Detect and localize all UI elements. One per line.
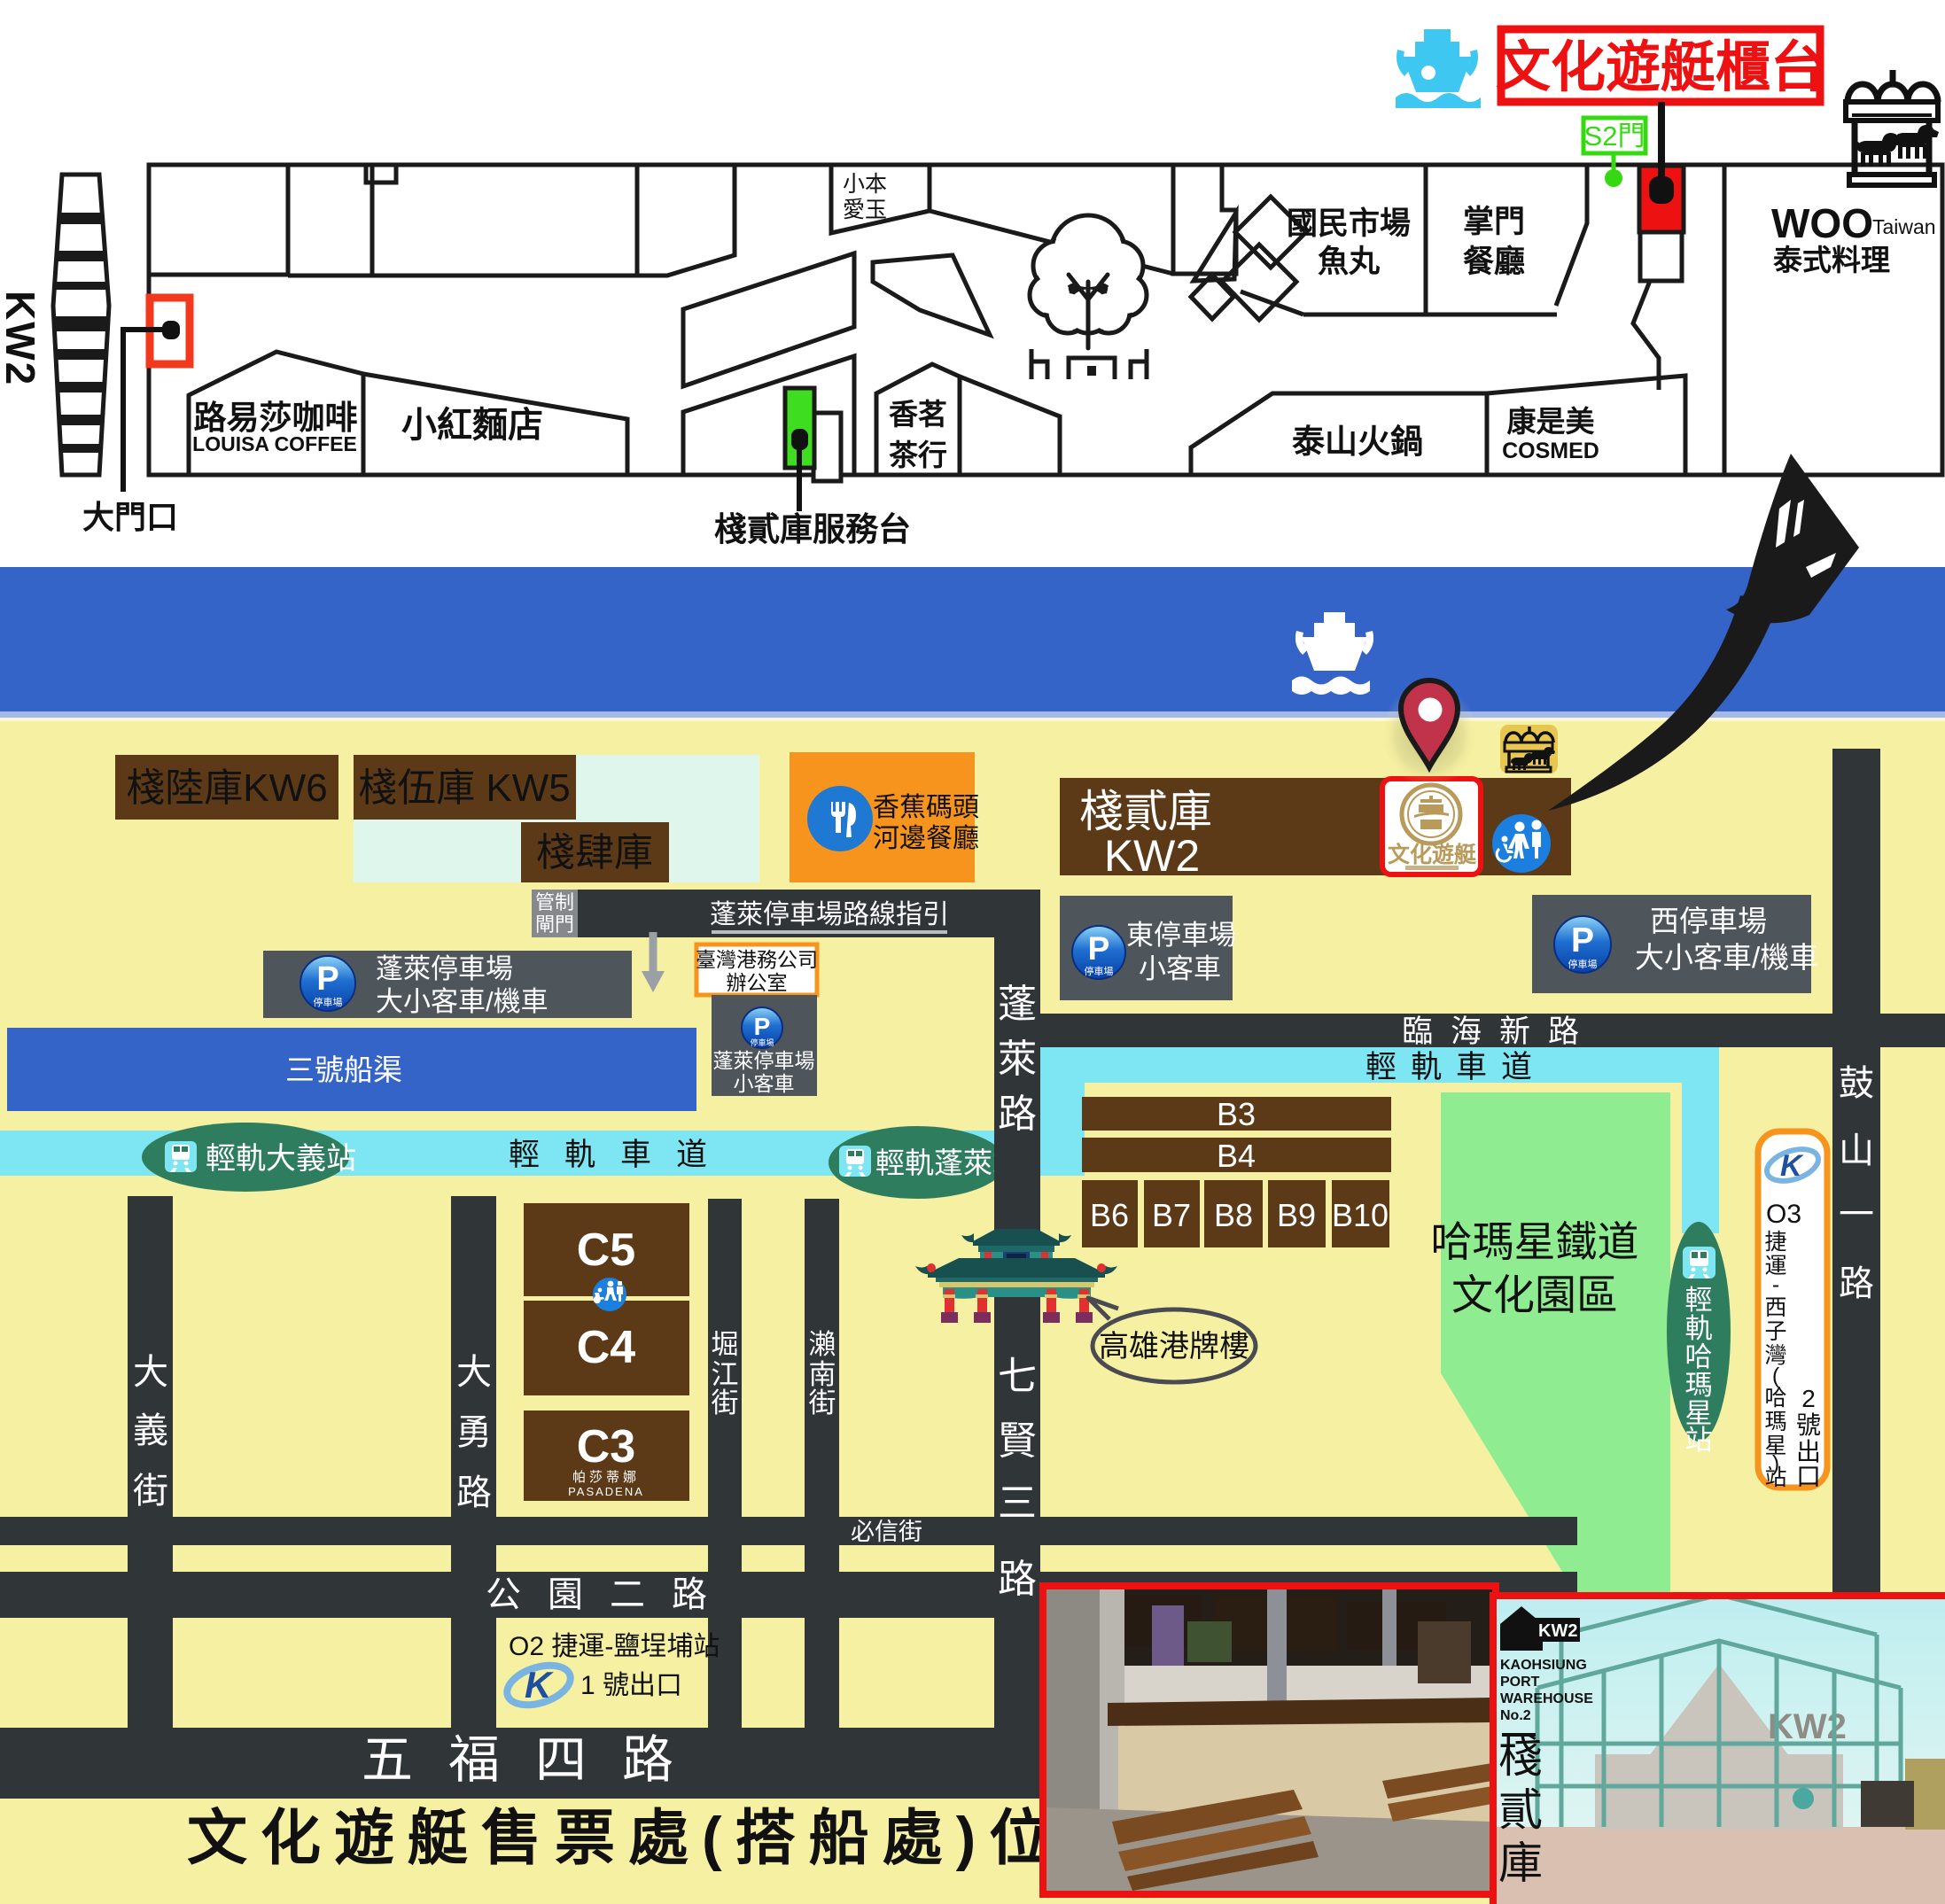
svg-text:小客車: 小客車: [1139, 953, 1221, 984]
svg-text:大小客車/機車: 大小客車/機車: [1635, 941, 1818, 974]
svg-text:愛玉: 愛玉: [843, 198, 887, 222]
svg-text:路: 路: [998, 1092, 1037, 1136]
svg-text:文化園區: 文化園區: [1451, 1271, 1618, 1318]
svg-text:子: 子: [1764, 1319, 1786, 1344]
svg-text:庫: 庫: [1498, 1838, 1543, 1888]
svg-text:站: 站: [1764, 1465, 1786, 1490]
svg-text:瀨: 瀨: [809, 1329, 836, 1360]
svg-text:B4: B4: [1217, 1138, 1256, 1174]
svg-text:站: 站: [1685, 1425, 1713, 1456]
svg-text:輕軌車道: 輕軌車道: [509, 1138, 732, 1172]
svg-text:O3: O3: [1766, 1200, 1801, 1229]
svg-text:輕軌車道: 輕軌車道: [1365, 1050, 1546, 1084]
svg-text:KW2: KW2: [1538, 1621, 1577, 1641]
svg-text:C5: C5: [577, 1224, 635, 1276]
svg-text:義: 義: [133, 1411, 168, 1450]
svg-text:PORT: PORT: [1500, 1675, 1540, 1690]
svg-text:No.2: No.2: [1500, 1708, 1531, 1723]
svg-text:蓬萊停車場: 蓬萊停車場: [713, 1049, 815, 1072]
svg-text:國民市場: 國民市場: [1287, 206, 1411, 241]
svg-text:停車場: 停車場: [314, 996, 343, 1008]
svg-text:停車場: 停車場: [750, 1037, 774, 1047]
svg-text:魚丸: 魚丸: [1318, 245, 1380, 279]
svg-text:P: P: [1571, 921, 1594, 960]
svg-text:棧伍庫 KW5: 棧伍庫 KW5: [358, 766, 571, 810]
svg-text:捷: 捷: [1764, 1230, 1786, 1255]
svg-text:五福四路: 五福四路: [362, 1731, 709, 1789]
svg-text:貳: 貳: [1498, 1785, 1543, 1835]
svg-text:西停車場: 西停車場: [1650, 905, 1767, 937]
svg-text:停車場: 停車場: [1085, 965, 1114, 977]
svg-text:棧肆庫: 棧肆庫: [536, 831, 653, 874]
svg-text:WAREHOUSE: WAREHOUSE: [1500, 1691, 1593, 1706]
svg-text:號: 號: [1796, 1411, 1821, 1439]
svg-text:路: 路: [998, 1558, 1037, 1601]
svg-text:公園二路: 公園二路: [486, 1575, 734, 1614]
svg-text:康是美: 康是美: [1507, 405, 1595, 438]
svg-text:文化遊艇: 文化遊艇: [1388, 842, 1476, 867]
svg-text:KAOHSIUNG: KAOHSIUNG: [1500, 1658, 1587, 1673]
svg-text:B10: B10: [1332, 1197, 1389, 1233]
svg-text:KW2: KW2: [1104, 831, 1200, 881]
svg-text:臨海新路: 臨海新路: [1402, 1014, 1597, 1049]
svg-text:大: 大: [133, 1353, 168, 1392]
svg-text:茶行: 茶行: [889, 439, 947, 471]
svg-text:哈: 哈: [1764, 1386, 1786, 1411]
svg-text:大門口: 大門口: [82, 499, 178, 535]
svg-text:山: 山: [1839, 1131, 1874, 1170]
svg-text:哈瑪星鐵道: 哈瑪星鐵道: [1431, 1218, 1639, 1265]
svg-text:小客車: 小客車: [734, 1072, 795, 1095]
svg-text:K: K: [525, 1664, 554, 1706]
svg-text:B9: B9: [1277, 1197, 1316, 1233]
svg-text:P: P: [1088, 930, 1110, 967]
svg-text:萊: 萊: [998, 1037, 1037, 1081]
svg-text:棧貳庫服務台: 棧貳庫服務台: [714, 511, 911, 548]
svg-text:香蕉碼頭: 香蕉碼頭: [873, 793, 979, 822]
svg-text:小本: 小本: [843, 172, 887, 197]
svg-text:Taiwan: Taiwan: [1872, 215, 1936, 238]
svg-text:停車場: 停車場: [1568, 958, 1598, 970]
svg-text:南: 南: [809, 1359, 836, 1390]
svg-text:輕軌大義站: 輕軌大義站: [206, 1142, 356, 1176]
svg-text:掌門: 掌門: [1463, 205, 1525, 239]
svg-text:文化遊艇櫃台: 文化遊艇櫃台: [1496, 37, 1825, 98]
svg-text:出: 出: [1796, 1438, 1821, 1465]
svg-text:小紅麵店: 小紅麵店: [401, 406, 543, 445]
svg-text:街: 街: [133, 1472, 168, 1511]
svg-text:棧貳庫: 棧貳庫: [1079, 787, 1212, 836]
svg-text:S2門: S2門: [1584, 120, 1645, 152]
svg-text:必信街: 必信街: [851, 1519, 922, 1545]
svg-text:鼓: 鼓: [1839, 1064, 1874, 1103]
svg-text:河邊餐廳: 河邊餐廳: [873, 824, 979, 853]
svg-text:軌: 軌: [1685, 1313, 1713, 1344]
svg-text:香茗: 香茗: [889, 398, 947, 431]
svg-text:大小客車/機車: 大小客車/機車: [376, 986, 548, 1017]
svg-text:輕: 輕: [1685, 1285, 1713, 1316]
svg-text:-: -: [1772, 1272, 1779, 1297]
svg-text:K: K: [1780, 1149, 1804, 1183]
svg-text:堀: 堀: [712, 1329, 739, 1360]
svg-text:2: 2: [1801, 1385, 1816, 1412]
svg-text:路易莎咖啡: 路易莎咖啡: [194, 400, 358, 436]
svg-text:一: 一: [1839, 1195, 1874, 1234]
svg-text:1 號出口: 1 號出口: [580, 1671, 682, 1700]
svg-text:棧: 棧: [1498, 1732, 1543, 1782]
svg-text:LOUISA COFFEE: LOUISA COFFEE: [192, 432, 357, 455]
svg-text:(: (: [1772, 1364, 1780, 1388]
svg-text:B3: B3: [1217, 1096, 1256, 1132]
svg-text:路: 路: [1839, 1264, 1874, 1303]
svg-text:瑪: 瑪: [1764, 1410, 1786, 1434]
svg-text:七: 七: [998, 1355, 1037, 1398]
svg-text:KW2: KW2: [0, 291, 43, 386]
svg-text:大: 大: [456, 1353, 492, 1392]
svg-text:COSMED: COSMED: [1502, 439, 1599, 463]
svg-text:B6: B6: [1090, 1197, 1129, 1233]
svg-text:泰山火鍋: 泰山火鍋: [1292, 423, 1423, 460]
svg-text:街: 街: [809, 1387, 836, 1418]
svg-text:街: 街: [712, 1387, 739, 1418]
svg-text:三: 三: [998, 1481, 1037, 1525]
svg-text:閘門: 閘門: [535, 913, 574, 936]
svg-text:江: 江: [712, 1359, 739, 1390]
svg-text:P: P: [316, 960, 338, 998]
svg-text:棧陸庫KW6: 棧陸庫KW6: [126, 766, 327, 810]
svg-text:賢: 賢: [998, 1419, 1037, 1463]
svg-text:C3: C3: [577, 1421, 635, 1473]
svg-text:B8: B8: [1214, 1197, 1253, 1233]
svg-text:餐廳: 餐廳: [1463, 245, 1525, 279]
svg-text:管制: 管制: [535, 891, 574, 913]
svg-text:哈: 哈: [1685, 1341, 1713, 1372]
svg-text:東停車場: 東停車場: [1126, 920, 1236, 951]
svg-text:三號船渠: 三號船渠: [285, 1053, 402, 1086]
svg-text:泰式料理: 泰式料理: [1773, 244, 1890, 276]
svg-text:西: 西: [1764, 1295, 1786, 1320]
svg-text:WOO: WOO: [1771, 200, 1873, 246]
svg-text:勇: 勇: [456, 1413, 492, 1452]
svg-text:PASADENA: PASADENA: [568, 1485, 644, 1498]
svg-text:P: P: [754, 1013, 771, 1040]
svg-text:路: 路: [456, 1473, 492, 1512]
svg-text:O2 捷運-鹽埕埔站: O2 捷運-鹽埕埔站: [509, 1632, 720, 1661]
svg-text:蓬萊停車場: 蓬萊停車場: [376, 953, 513, 984]
svg-text:瑪: 瑪: [1685, 1370, 1713, 1401]
svg-text:口: 口: [1796, 1463, 1821, 1490]
svg-text:帕莎蒂娜: 帕莎蒂娜: [572, 1470, 640, 1485]
svg-text:辦公室: 辦公室: [727, 971, 788, 994]
svg-text:高雄港牌樓: 高雄港牌樓: [1099, 1330, 1249, 1364]
svg-text:B7: B7: [1152, 1197, 1191, 1233]
svg-text:蓬萊停車場路線指引: 蓬萊停車場路線指引: [710, 900, 949, 929]
svg-text:臺灣港務公司: 臺灣港務公司: [696, 948, 818, 971]
svg-text:蓬: 蓬: [998, 983, 1037, 1026]
svg-text:C4: C4: [577, 1322, 636, 1373]
